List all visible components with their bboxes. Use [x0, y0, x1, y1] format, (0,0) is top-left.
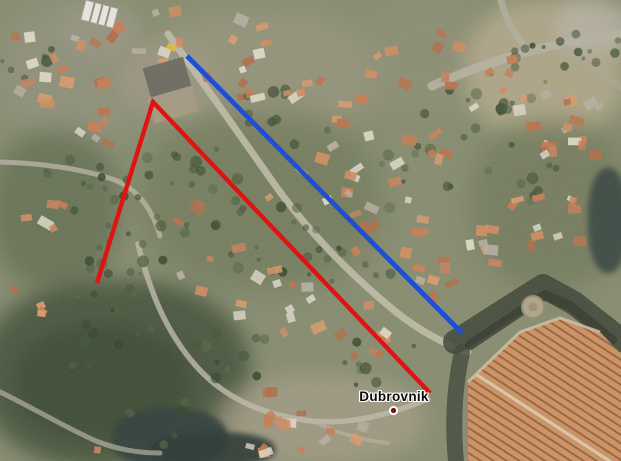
- satellite-map-image: Dubrovnik: [0, 0, 621, 461]
- place-marker-dot: [391, 408, 396, 413]
- place-label: Dubrovnik: [359, 390, 428, 403]
- route-line-blue: [187, 56, 462, 333]
- route-overlay: [0, 0, 621, 461]
